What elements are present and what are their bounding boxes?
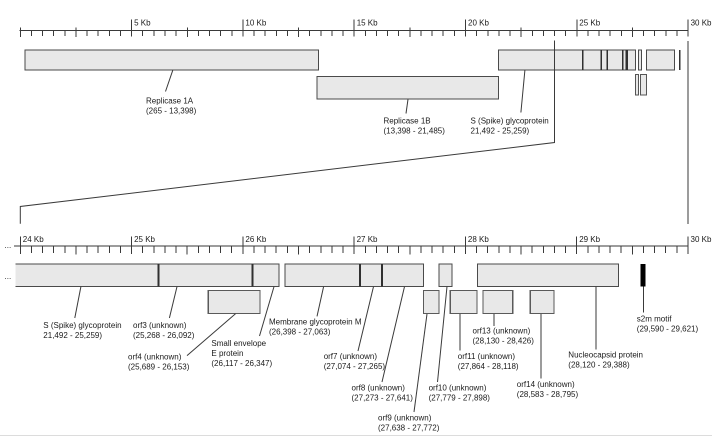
- svg-text:orf11 (unknown): orf11 (unknown): [458, 352, 516, 361]
- svg-text:5 Kb: 5 Kb: [134, 19, 151, 28]
- svg-text:orf13 (unknown): orf13 (unknown): [473, 327, 531, 336]
- svg-text:24 Kb: 24 Kb: [23, 235, 44, 244]
- svg-text:30 Kb: 30 Kb: [691, 19, 712, 28]
- svg-text:Membrane glycoprotein M: Membrane glycoprotein M: [269, 318, 362, 327]
- svg-text:orf3 (unknown): orf3 (unknown): [133, 321, 187, 330]
- svg-text:Replicase 1B: Replicase 1B: [384, 117, 431, 126]
- svg-text:(27,273 - 27,641): (27,273 - 27,641): [352, 394, 414, 403]
- svg-text:s2m motif: s2m motif: [637, 315, 672, 324]
- svg-text:(13,398 - 21,485): (13,398 - 21,485): [384, 127, 446, 136]
- svg-text:(27,864 - 28,118): (27,864 - 28,118): [458, 362, 519, 371]
- svg-text:...: ...: [5, 272, 12, 281]
- svg-text:10 Kb: 10 Kb: [245, 19, 266, 28]
- svg-text:15 Kb: 15 Kb: [357, 19, 378, 28]
- svg-text:S (Spike) glycoprotein: S (Spike) glycoprotein: [471, 117, 549, 126]
- svg-text:21,492 - 25,259): 21,492 - 25,259): [43, 331, 102, 340]
- svg-text:(25,268 - 26,092): (25,268 - 26,092): [133, 331, 195, 340]
- svg-text:20 Kb: 20 Kb: [468, 19, 489, 28]
- svg-text:(27,779 - 27,898): (27,779 - 27,898): [429, 394, 491, 403]
- svg-text:28 Kb: 28 Kb: [468, 235, 489, 244]
- svg-text:29 Kb: 29 Kb: [579, 235, 600, 244]
- svg-text:25 Kb: 25 Kb: [579, 19, 600, 28]
- svg-text:orf4 (unknown): orf4 (unknown): [128, 353, 182, 362]
- svg-text:(28,130 - 28,426): (28,130 - 28,426): [473, 337, 535, 346]
- svg-text:(27,074 - 27,265): (27,074 - 27,265): [324, 362, 386, 371]
- svg-text:25 Kb: 25 Kb: [134, 235, 155, 244]
- svg-text:orf9 (unknown): orf9 (unknown): [378, 414, 432, 423]
- svg-text:21,492 - 25,259): 21,492 - 25,259): [471, 127, 530, 136]
- svg-text:Replicase 1A: Replicase 1A: [146, 97, 194, 106]
- svg-text:Small envelope: Small envelope: [211, 339, 266, 348]
- svg-text:...: ...: [5, 241, 12, 250]
- svg-text:orf7 (unknown): orf7 (unknown): [324, 352, 378, 361]
- svg-text:Nucleocapsid protein: Nucleocapsid protein: [568, 351, 643, 360]
- svg-text:(27,638 - 27,772): (27,638 - 27,772): [378, 424, 440, 433]
- svg-text:orf8 (unknown): orf8 (unknown): [352, 384, 406, 393]
- svg-text:27 Kb: 27 Kb: [357, 235, 378, 244]
- svg-text:30 Kb: 30 Kb: [691, 235, 712, 244]
- svg-text:E protein: E protein: [211, 349, 243, 358]
- svg-text:(26,398 - 27,063): (26,398 - 27,063): [269, 328, 331, 337]
- svg-text:orf10 (unknown): orf10 (unknown): [429, 384, 487, 393]
- svg-text:(29,590 - 29,621): (29,590 - 29,621): [637, 325, 699, 334]
- svg-text:(28,583 - 28,795): (28,583 - 28,795): [517, 390, 579, 399]
- svg-text:(25,689 - 26,153): (25,689 - 26,153): [128, 363, 190, 372]
- svg-text:S (Spike) glycoprotein: S (Spike) glycoprotein: [43, 321, 121, 330]
- svg-text:26 Kb: 26 Kb: [245, 235, 266, 244]
- svg-text:orf14 (unknown): orf14 (unknown): [517, 380, 575, 389]
- svg-text:(265 - 13,398): (265 - 13,398): [146, 107, 197, 116]
- svg-text:(26,117 - 26,347): (26,117 - 26,347): [211, 359, 272, 368]
- svg-text:(28,120 - 29,388): (28,120 - 29,388): [568, 361, 630, 370]
